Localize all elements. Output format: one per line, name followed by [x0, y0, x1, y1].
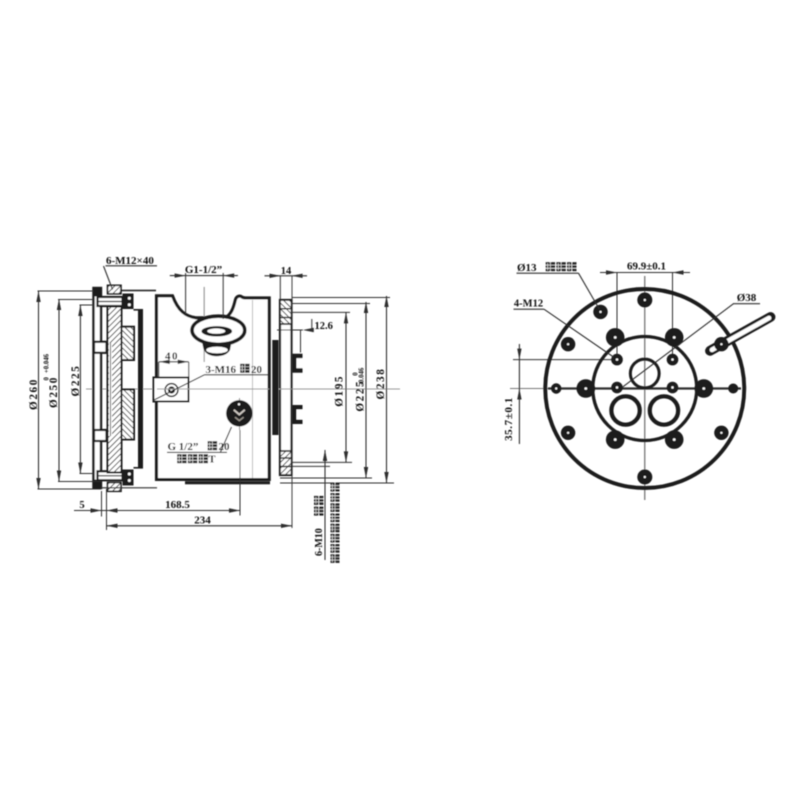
svg-text:168.5: 168.5 [165, 499, 190, 511]
svg-text:Ø13: Ø13 [517, 262, 537, 274]
svg-text:14: 14 [281, 266, 292, 277]
svg-text:6-M10: 6-M10 [314, 528, 325, 556]
svg-text:35.7±0.1: 35.7±0.1 [503, 397, 515, 441]
svg-text:Ø238: Ø238 [375, 368, 387, 400]
svg-text:5: 5 [79, 500, 84, 511]
svg-text:0: 0 [43, 377, 50, 381]
svg-text:Ø225: Ø225 [70, 365, 82, 397]
svg-text:G1-1/2”: G1-1/2” [185, 264, 222, 276]
svg-text:69.9±0.1: 69.9±0.1 [627, 260, 666, 272]
svg-text:234: 234 [194, 514, 211, 526]
svg-text:20: 20 [251, 364, 263, 376]
svg-text:G 1/2”: G 1/2” [168, 441, 199, 453]
svg-text:T: T [209, 455, 216, 466]
svg-text:Ø195: Ø195 [334, 375, 346, 407]
svg-text:3-M16: 3-M16 [206, 364, 237, 376]
svg-text:6-M12×40: 6-M12×40 [106, 255, 154, 267]
svg-text:Ø260: Ø260 [28, 378, 40, 410]
svg-text:12.6: 12.6 [315, 321, 333, 332]
svg-text:20: 20 [219, 441, 231, 453]
svg-text:+0.046: +0.046 [43, 353, 50, 373]
svg-text:-0.046: -0.046 [359, 367, 366, 385]
svg-text:4-M12: 4-M12 [514, 299, 543, 310]
svg-text:Ø38: Ø38 [737, 292, 757, 304]
